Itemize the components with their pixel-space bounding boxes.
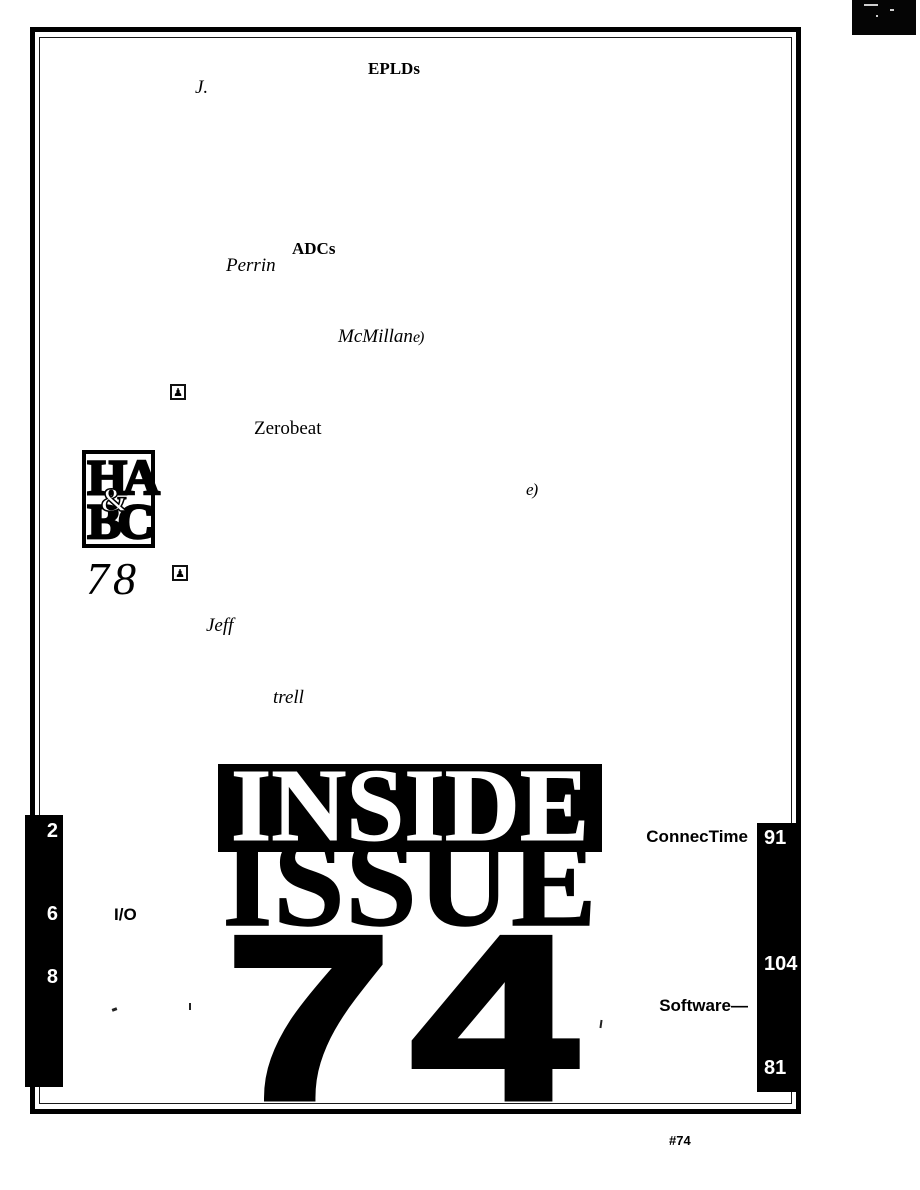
rail-page-104: 104 [764, 954, 797, 974]
habc-logo: HA BC & [82, 450, 155, 548]
connectime-label: ConnecTime [628, 827, 748, 847]
title-issue-number: 74 [226, 903, 597, 1135]
left-page-rail: 2 6 8 [25, 815, 63, 1087]
corner-scan-block [852, 0, 916, 35]
right-page-rail: 91 104 81 [757, 823, 797, 1092]
pawn-marker-icon: ♟ [170, 384, 186, 400]
article-end-mark-icon: e) [413, 329, 423, 346]
io-label: I/O [114, 905, 137, 925]
page-number-78: 78 [86, 552, 140, 605]
rail-page-81: 81 [764, 1058, 786, 1078]
zerobeat-label: Zerobeat [254, 418, 322, 440]
software-label: Software— [628, 996, 748, 1016]
inside-banner: INSIDE [218, 764, 602, 852]
pawn-marker-icon: ♟ [172, 565, 188, 581]
article-end-mark-icon: e) [526, 480, 537, 500]
author-perrin: Perrin [226, 255, 276, 277]
rail-page-91: 91 [764, 828, 786, 848]
rail-page-8: 8 [47, 967, 58, 987]
author-j: J. [195, 77, 208, 99]
rail-page-6: 6 [47, 904, 58, 924]
author-mcmillan-line: McMillane) [338, 326, 423, 348]
author-mcmillan: McMillan [338, 326, 413, 347]
magazine-toc-page: EPLDs J. ADCs Perrin McMillane) ♟ Zerobe… [0, 0, 920, 1190]
scan-speck [189, 1003, 191, 1010]
issue-tag: #74 [669, 1133, 691, 1148]
author-jeff: Jeff [206, 615, 233, 637]
author-trell: trell [273, 687, 304, 709]
habc-logo-ampersand: & [100, 482, 128, 520]
eplds-heading: EPLDs [368, 59, 420, 79]
adcs-heading: ADCs [292, 239, 335, 259]
rail-page-2: 2 [47, 821, 58, 841]
title-inside: INSIDE [231, 762, 589, 850]
